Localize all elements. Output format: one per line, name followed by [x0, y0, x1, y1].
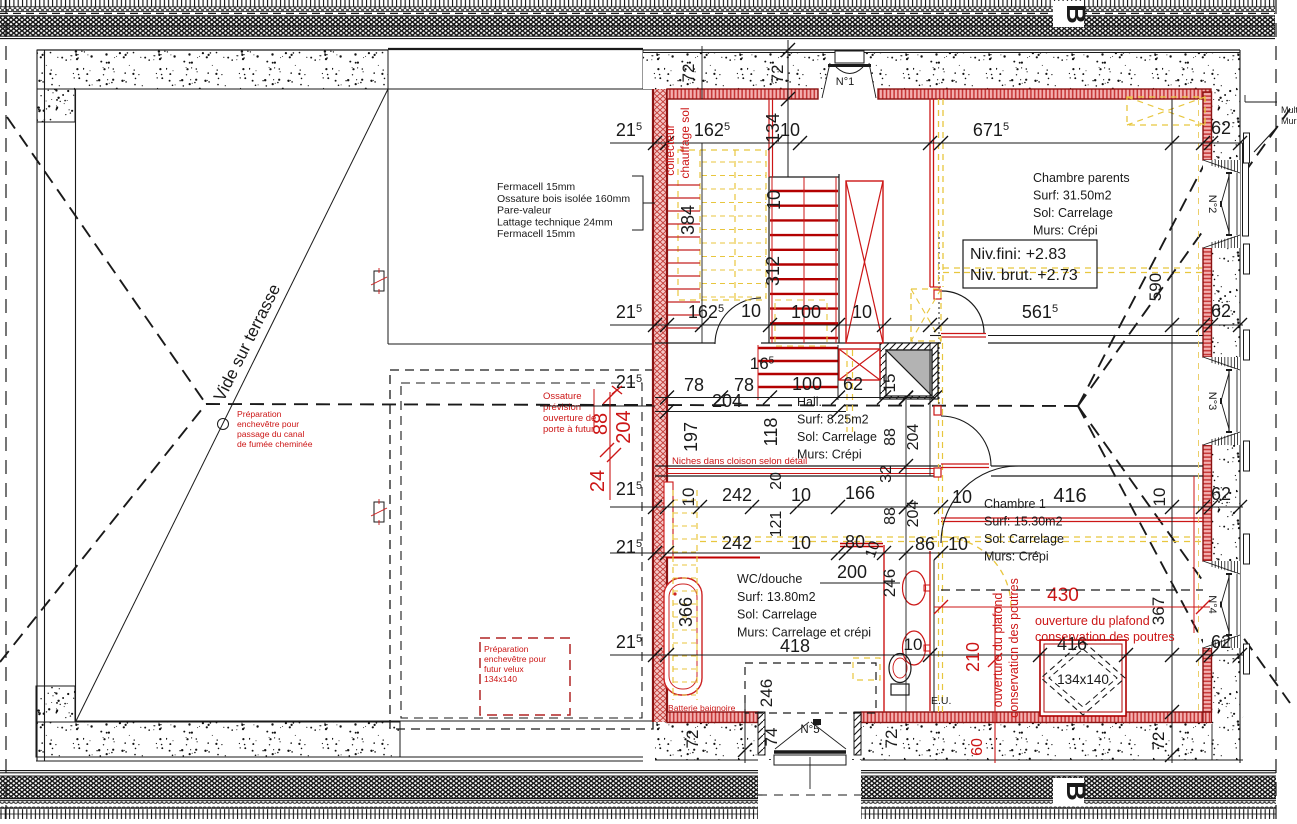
svg-text:10: 10 — [952, 487, 972, 507]
svg-text:B: B — [1061, 781, 1091, 801]
svg-text:enchevêtre pour: enchevêtre pour — [237, 419, 299, 429]
svg-text:242: 242 — [722, 485, 752, 505]
svg-text:ouverture du plafond: ouverture du plafond — [1035, 614, 1150, 628]
svg-text:24: 24 — [587, 470, 609, 492]
svg-text:porte à futur: porte à futur — [543, 424, 594, 435]
svg-text:Hall.: Hall. — [797, 395, 822, 409]
svg-text:204: 204 — [905, 501, 922, 528]
svg-text:N°1: N°1 — [836, 76, 854, 88]
svg-text:WC/douche: WC/douche — [737, 572, 802, 586]
svg-text:Mur r: Mur r — [1281, 116, 1297, 126]
svg-text:chauffage sol: chauffage sol — [678, 107, 692, 178]
svg-text:futur velux: futur velux — [484, 664, 524, 674]
svg-text:72: 72 — [882, 730, 901, 749]
svg-text:118: 118 — [761, 418, 781, 447]
svg-text:prévision: prévision — [543, 402, 581, 413]
svg-text:Lattage technique 24mm: Lattage technique 24mm — [497, 216, 613, 228]
svg-text:de fumée cheminée: de fumée cheminée — [237, 439, 313, 449]
svg-text:62: 62 — [1211, 484, 1231, 504]
svg-text:78: 78 — [684, 375, 704, 395]
svg-text:88: 88 — [882, 507, 899, 525]
svg-text:N°3: N°3 — [1206, 392, 1218, 410]
svg-text:384: 384 — [678, 205, 698, 235]
svg-text:Niv.fini: +2.83: Niv.fini: +2.83 — [970, 246, 1066, 263]
svg-text:10: 10 — [904, 635, 923, 654]
svg-text:121: 121 — [768, 511, 785, 538]
svg-text:10: 10 — [791, 533, 811, 553]
svg-text:Sol: Carrelage: Sol: Carrelage — [797, 430, 877, 444]
svg-text:416: 416 — [1053, 485, 1086, 507]
svg-text:62: 62 — [1211, 632, 1231, 652]
svg-text:72: 72 — [768, 65, 787, 84]
svg-text:246: 246 — [880, 569, 899, 597]
svg-text:10: 10 — [764, 190, 784, 210]
svg-text:Pare-valeur: Pare-valeur — [497, 205, 552, 217]
svg-text:100: 100 — [791, 302, 821, 322]
svg-text:430: 430 — [1047, 585, 1079, 606]
svg-text:62: 62 — [1211, 118, 1231, 138]
svg-text:210: 210 — [963, 642, 983, 672]
svg-text:86: 86 — [915, 534, 935, 554]
svg-text:590: 590 — [1146, 273, 1165, 301]
svg-text:Surf: 31.50m2: Surf: 31.50m2 — [1033, 189, 1112, 203]
svg-text:Murs: Carrelage et crépi: Murs: Carrelage et crépi — [737, 625, 871, 639]
svg-text:Multi: Multi — [1281, 105, 1297, 115]
svg-text:Sol: Carrelage: Sol: Carrelage — [737, 608, 817, 622]
svg-text:10: 10 — [948, 534, 968, 554]
svg-text:10: 10 — [852, 302, 872, 322]
svg-text:10: 10 — [741, 301, 761, 321]
svg-text:conservation des poutres: conservation des poutres — [1007, 578, 1021, 718]
svg-text:Surf: 13.80m2: Surf: 13.80m2 — [737, 590, 816, 604]
svg-text:80: 80 — [845, 532, 865, 552]
svg-text:collecteur: collecteur — [663, 124, 677, 175]
svg-text:10: 10 — [1150, 488, 1169, 507]
svg-text:E.U.: E.U. — [931, 695, 951, 707]
svg-text:10: 10 — [791, 485, 811, 505]
svg-text:Ossature bois isolée 160mm: Ossature bois isolée 160mm — [497, 193, 630, 205]
svg-text:312: 312 — [763, 256, 783, 286]
svg-text:conservation des poutres: conservation des poutres — [1035, 630, 1175, 644]
svg-text:Niches dans cloison selon déta: Niches dans cloison selon détail — [672, 456, 807, 467]
svg-text:Ossature: Ossature — [543, 391, 582, 402]
svg-text:62: 62 — [843, 374, 863, 394]
svg-text:Chambre parents: Chambre parents — [1033, 171, 1130, 185]
svg-text:Batterie baignoire: Batterie baignoire — [668, 703, 736, 713]
svg-text:204: 204 — [712, 391, 742, 411]
svg-text:ouverture de: ouverture de — [543, 413, 596, 424]
svg-text:ouverture du plafond: ouverture du plafond — [991, 593, 1005, 708]
svg-text:Fermacell 15mm: Fermacell 15mm — [497, 228, 575, 240]
svg-text:204: 204 — [613, 410, 635, 443]
svg-text:N°2: N°2 — [1206, 195, 1218, 213]
svg-text:Préparation: Préparation — [237, 409, 282, 419]
svg-text:15: 15 — [880, 374, 899, 393]
svg-text:Murs: Crépi: Murs: Crépi — [984, 550, 1049, 564]
svg-text:204: 204 — [905, 424, 922, 451]
svg-text:passage du canal: passage du canal — [237, 429, 304, 439]
svg-text:Préparation: Préparation — [484, 644, 529, 654]
svg-text:72: 72 — [683, 730, 702, 749]
svg-text:20: 20 — [768, 472, 785, 490]
svg-text:Surf: 8.25m2: Surf: 8.25m2 — [797, 413, 869, 427]
svg-text:Chambre 1: Chambre 1 — [984, 497, 1046, 511]
svg-text:N°5: N°5 — [800, 724, 819, 736]
svg-text:197: 197 — [681, 422, 701, 452]
svg-text:Niv. brut. +2.73: Niv. brut. +2.73 — [970, 267, 1078, 284]
svg-text:62: 62 — [1211, 301, 1231, 321]
svg-text:enchevêtre pour: enchevêtre pour — [484, 654, 546, 664]
svg-text:N°4: N°4 — [1206, 595, 1218, 613]
svg-text:366: 366 — [676, 597, 696, 627]
svg-text:72: 72 — [679, 64, 698, 83]
svg-text:60: 60 — [969, 738, 986, 756]
svg-text:Murs: Crépi: Murs: Crépi — [1033, 224, 1098, 238]
svg-text:74: 74 — [762, 728, 781, 747]
svg-text:100: 100 — [792, 374, 822, 394]
svg-text:367: 367 — [1149, 597, 1168, 625]
svg-text:72: 72 — [1149, 732, 1168, 751]
svg-text:246: 246 — [757, 679, 776, 707]
svg-text:200: 200 — [837, 562, 867, 582]
svg-text:134x140: 134x140 — [484, 674, 517, 684]
svg-text:134x140: 134x140 — [1057, 672, 1109, 687]
svg-text:B: B — [1061, 4, 1091, 24]
svg-text:Sol: Carrelage: Sol: Carrelage — [984, 532, 1064, 546]
svg-text:242: 242 — [722, 533, 752, 553]
svg-text:Fermacell 15mm: Fermacell 15mm — [497, 181, 575, 193]
svg-text:134: 134 — [763, 113, 783, 143]
svg-text:Surf: 15.30m2: Surf: 15.30m2 — [984, 515, 1063, 529]
svg-text:Sol: Carrelage: Sol: Carrelage — [1033, 206, 1113, 220]
svg-text:88: 88 — [882, 428, 899, 446]
svg-text:166: 166 — [845, 483, 875, 503]
svg-text:32: 32 — [878, 465, 895, 483]
svg-text:10: 10 — [679, 488, 698, 507]
